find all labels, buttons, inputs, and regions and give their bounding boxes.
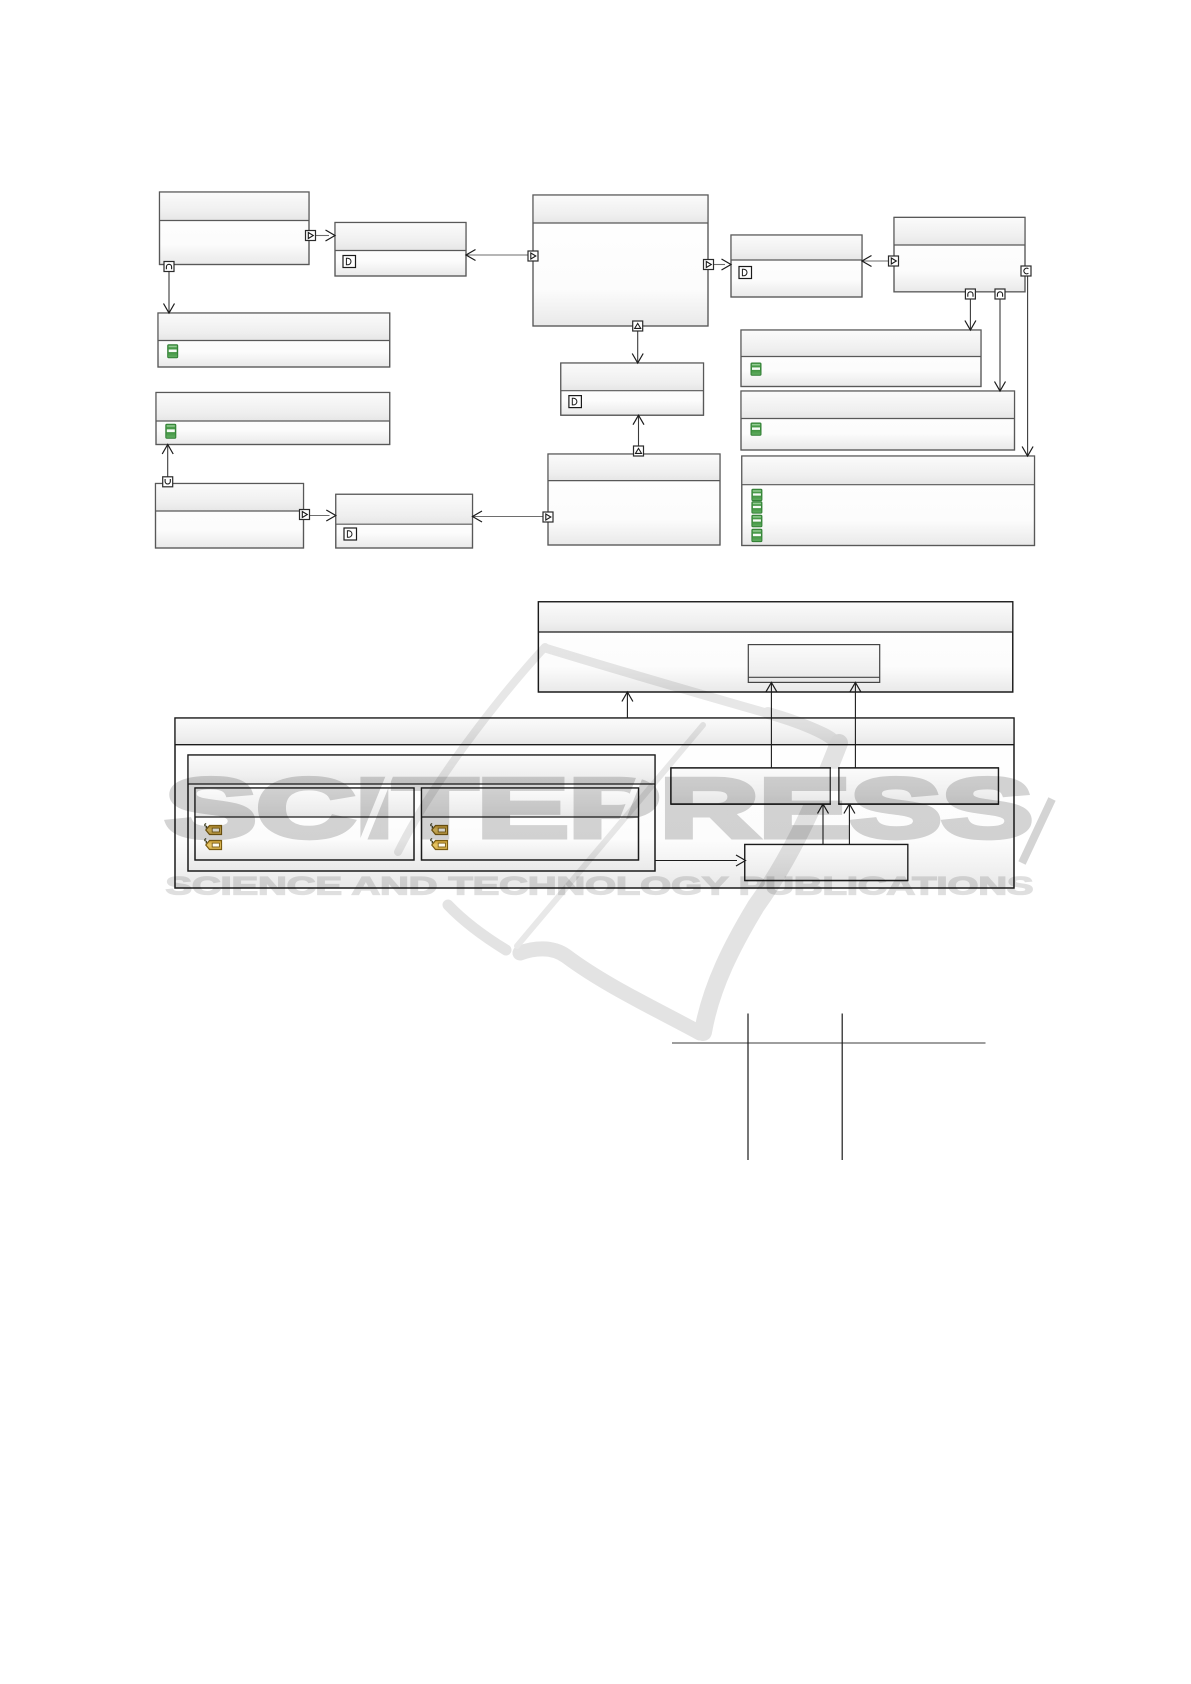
- svg-text:SCIENCE AND TECHNOLOGY PUBLICA: SCIENCE AND TECHNOLOGY PUBLICATIONS: [166, 873, 1034, 901]
- svg-text:SCITEPRESS: SCITEPRESS: [165, 761, 1033, 855]
